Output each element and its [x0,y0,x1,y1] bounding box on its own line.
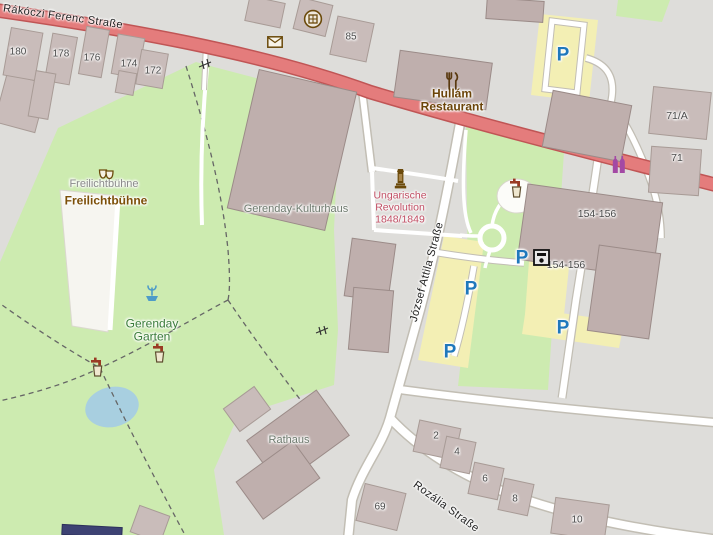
building [468,462,504,500]
building [648,146,701,195]
drinking-water-icon [151,343,168,368]
drinking-water-icon [89,357,106,382]
building [486,0,544,22]
postbox-icon [267,35,283,53]
map-base-layer [0,0,713,535]
building [348,287,393,352]
shop-icon [611,155,627,179]
building [587,245,660,339]
map-canvas[interactable]: Rákóczi Ferenc Straße József Attila Stra… [0,0,713,535]
artwork-icon [303,9,323,34]
memorial-icon [394,169,407,194]
building [330,16,374,62]
restaurant-icon [442,72,462,95]
building [115,71,137,96]
building [649,87,712,140]
building [440,436,476,474]
building [136,49,169,88]
fountain-icon [142,285,162,307]
building [498,478,534,516]
theatre-icon [98,167,115,185]
drinking-water-icon [508,178,525,203]
atm-icon [533,249,550,271]
